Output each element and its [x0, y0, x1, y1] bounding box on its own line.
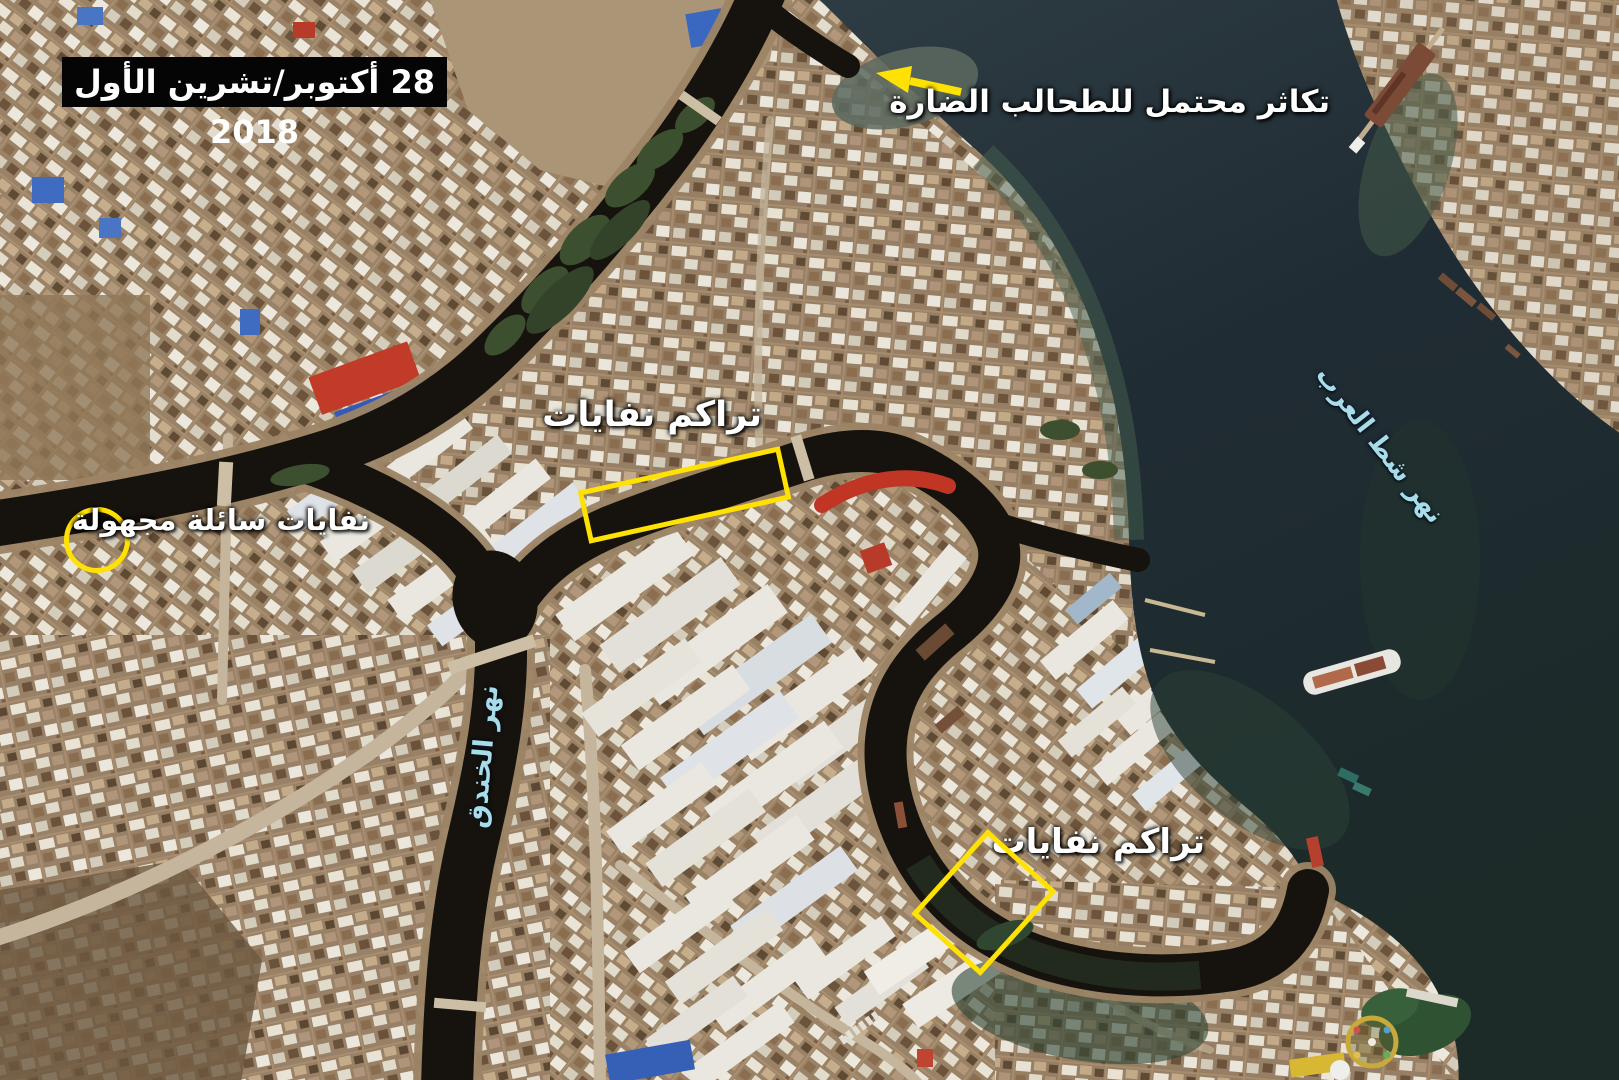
date-label: 28 أكتوبر/تشرين الأول 2018	[62, 57, 447, 107]
annotated-satellite-image: 28 أكتوبر/تشرين الأول 2018 تكاثر محتمل ل…	[0, 0, 1619, 1080]
waste-shipyard-label: تراكم نفايات	[1015, 822, 1205, 862]
satellite-map	[0, 0, 1619, 1080]
algae-bloom-label: تكاثر محتمل للطحالب الضارة	[980, 84, 1330, 120]
liquid-waste-label: نفايات سائلة مجهولة	[130, 503, 370, 537]
waste-canal-label: تراكم نفايات	[592, 395, 762, 435]
